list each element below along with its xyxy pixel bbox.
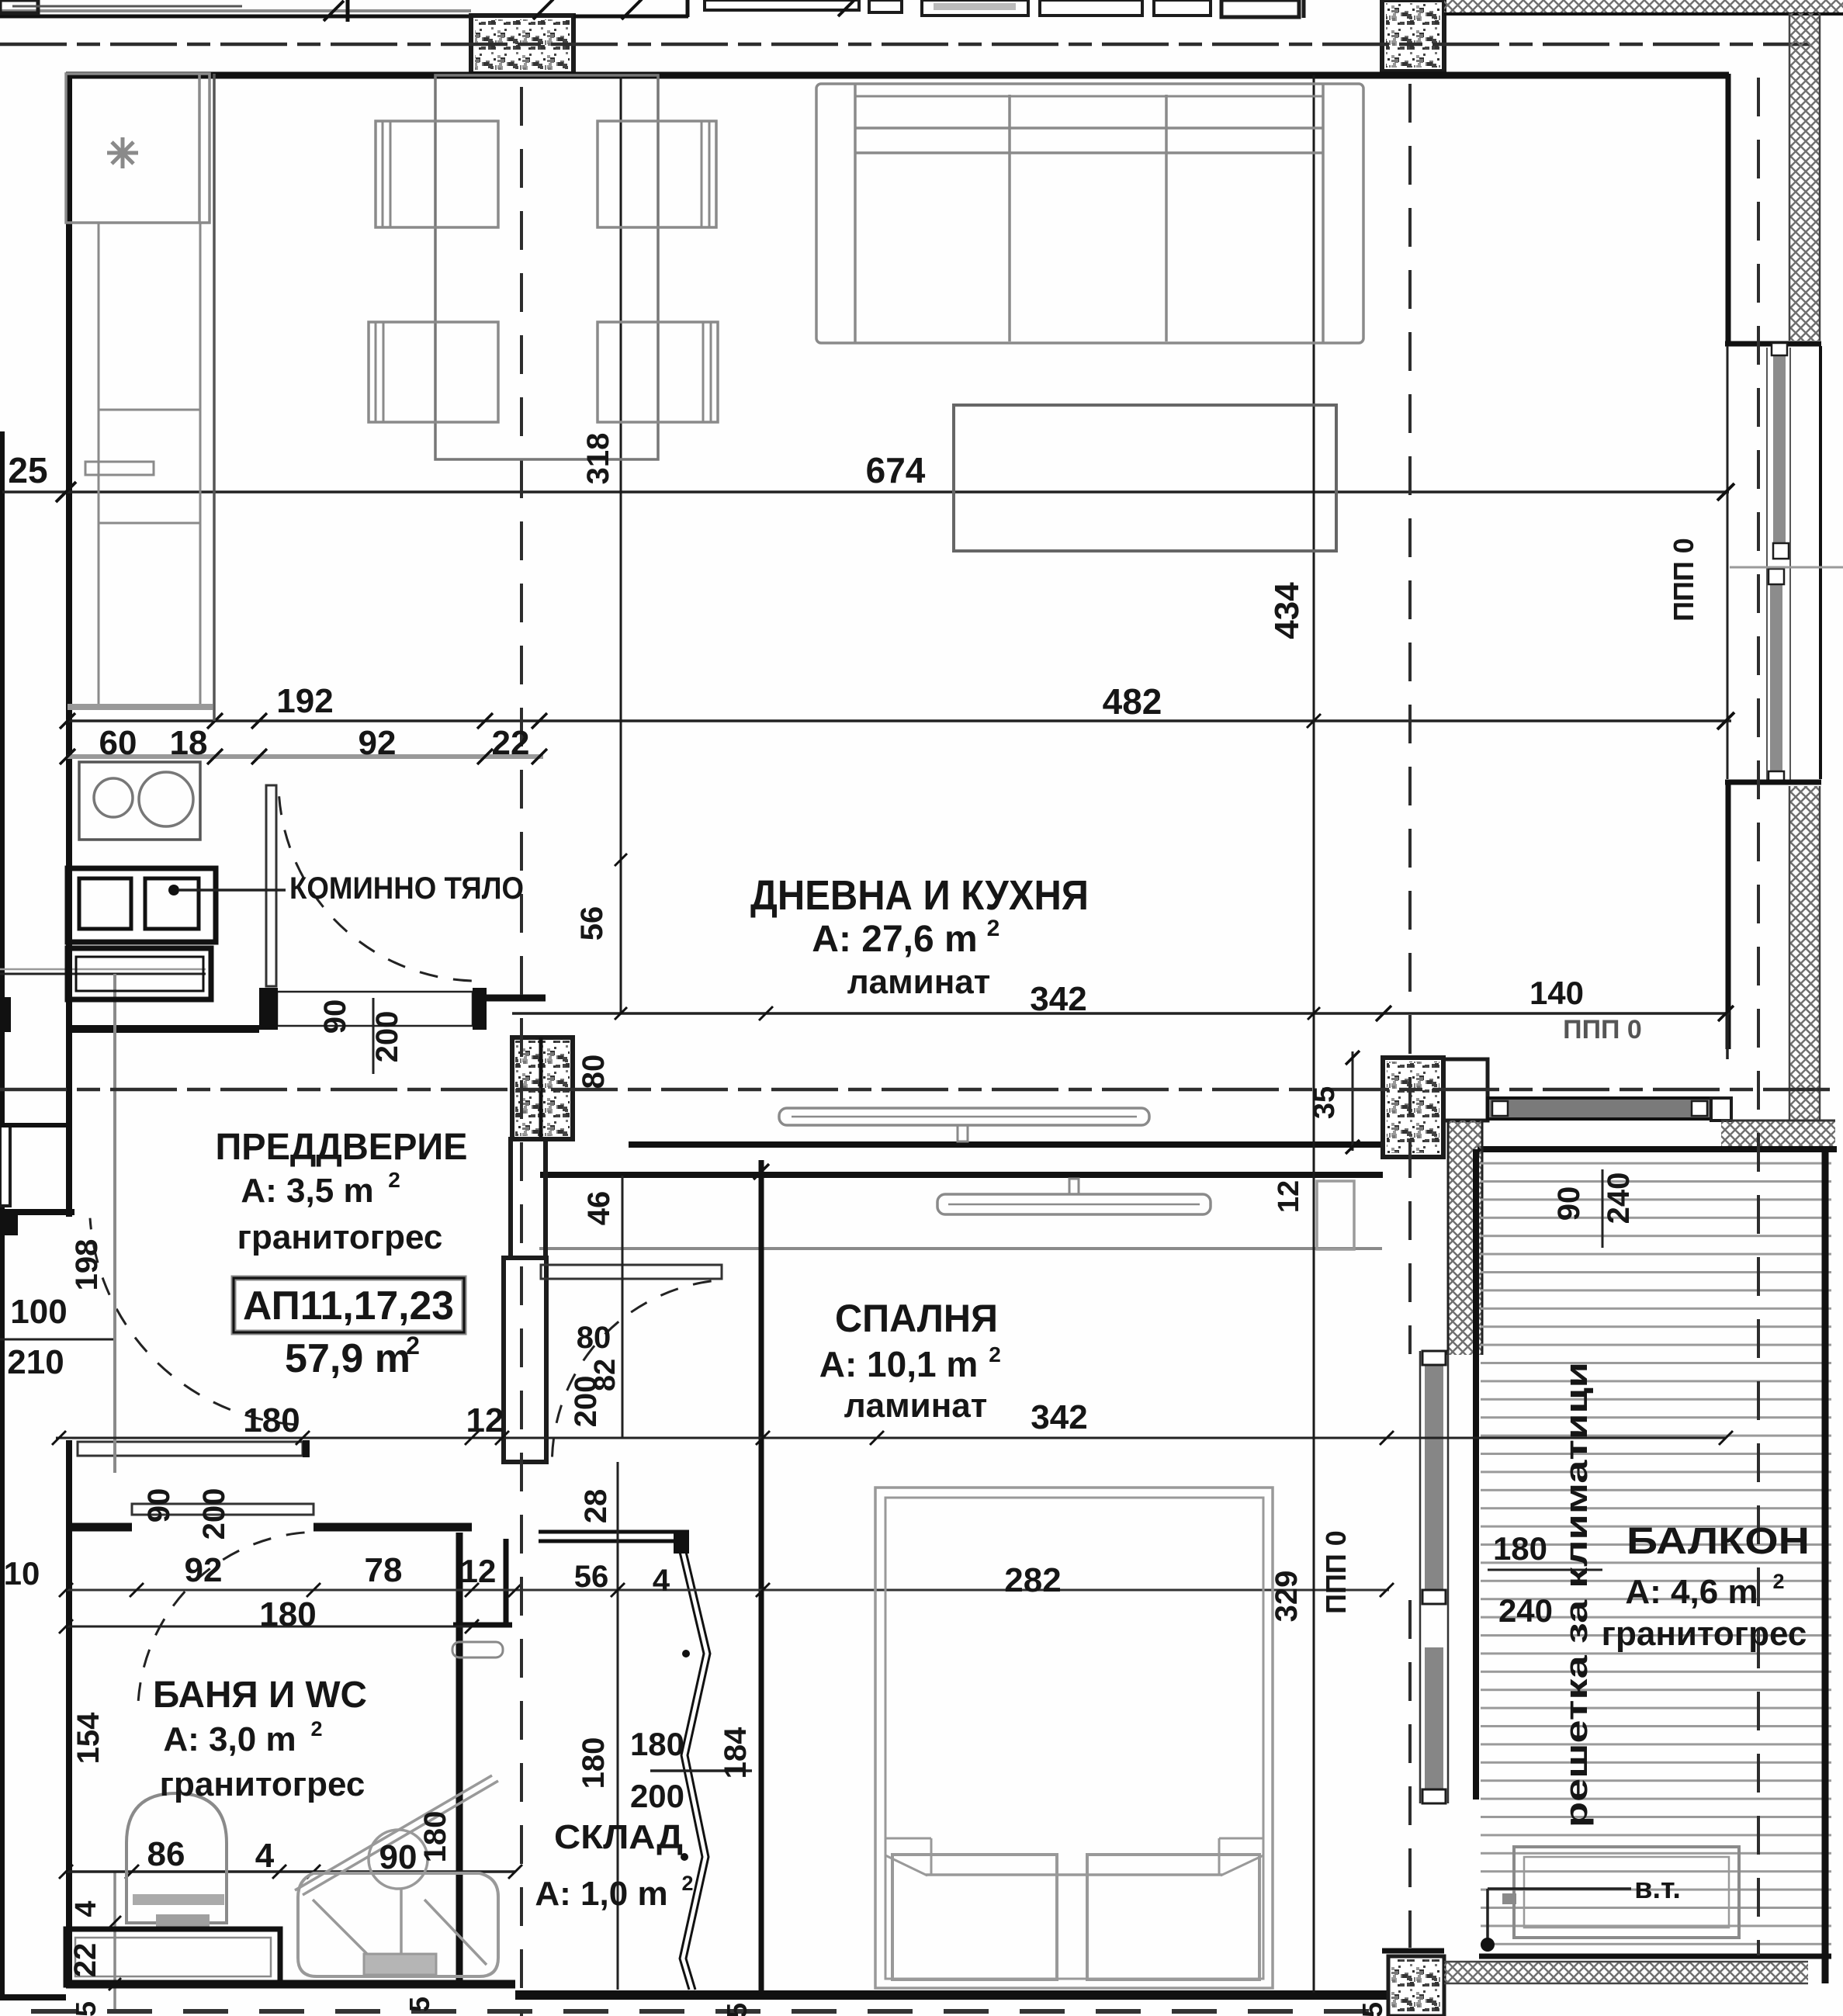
svg-text:80: 80 [577,1055,611,1089]
svg-text:140: 140 [1529,975,1584,1011]
svg-text:25: 25 [8,450,47,490]
svg-text:5: 5 [70,2001,102,2016]
svg-text:184: 184 [719,1727,753,1779]
svg-text:5: 5 [1356,2002,1388,2016]
svg-text:22: 22 [492,724,530,762]
svg-text:А: 4,6 m: А: 4,6 m [1625,1573,1758,1611]
svg-text:АП11,17,23: АП11,17,23 [243,1283,454,1328]
svg-text:200: 200 [630,1778,684,1814]
svg-text:154: 154 [71,1712,106,1764]
svg-text:90: 90 [142,1488,176,1523]
svg-text:198: 198 [70,1239,104,1291]
svg-text:22: 22 [68,1943,102,1978]
svg-text:180: 180 [630,1726,684,1762]
svg-text:78: 78 [365,1551,403,1589]
svg-text:210: 210 [7,1343,64,1381]
svg-text:56: 56 [575,906,609,941]
svg-text:СПАЛНЯ: СПАЛНЯ [835,1297,998,1340]
svg-text:А: 10,1 m: А: 10,1 m [819,1344,979,1384]
svg-text:ПРЕДДВЕРИЕ: ПРЕДДВЕРИЕ [216,1127,468,1168]
svg-text:2: 2 [989,1342,1001,1367]
svg-text:БАНЯ И WC: БАНЯ И WC [153,1675,367,1716]
svg-text:200: 200 [197,1488,231,1540]
svg-text:2: 2 [388,1168,400,1192]
svg-text:28: 28 [579,1489,613,1524]
svg-text:674: 674 [866,450,926,490]
svg-text:2: 2 [987,916,1000,941]
svg-text:4: 4 [255,1837,275,1875]
svg-text:82: 82 [589,1359,622,1391]
svg-text:180: 180 [1493,1530,1547,1567]
svg-text:5: 5 [404,1997,435,2012]
svg-text:200: 200 [370,1011,404,1063]
svg-text:180: 180 [577,1737,611,1789]
svg-text:2: 2 [310,1717,322,1741]
svg-text:60: 60 [99,724,137,762]
svg-text:БАЛКОН: БАЛКОН [1626,1521,1810,1562]
svg-text:А: 3,0 m: А: 3,0 m [163,1720,296,1758]
svg-text:гранитогрес: гранитогрес [237,1218,443,1256]
svg-text:434: 434 [1268,582,1306,639]
svg-text:180: 180 [418,1811,452,1863]
svg-text:56: 56 [574,1560,609,1594]
svg-text:342: 342 [1031,1398,1087,1436]
svg-text:18: 18 [170,724,208,762]
svg-text:57,9 m: 57,9 m [285,1336,411,1381]
svg-text:12: 12 [460,1553,497,1589]
svg-text:А: 27,6 m: А: 27,6 m [812,919,977,960]
svg-text:ламинат: ламинат [847,963,991,1001]
svg-text:80: 80 [577,1321,611,1355]
svg-text:4: 4 [653,1564,670,1598]
svg-text:гранитогрес: гранитогрес [160,1765,365,1803]
svg-text:192: 192 [276,682,333,720]
svg-text:90: 90 [1552,1186,1586,1221]
svg-text:ламинат: ламинат [844,1387,988,1425]
svg-text:12: 12 [466,1401,504,1439]
svg-text:92: 92 [359,724,397,762]
svg-text:46: 46 [582,1191,616,1226]
svg-text:ППП 0: ППП 0 [1320,1530,1352,1614]
svg-text:318: 318 [581,433,615,485]
svg-text:в.т.: в.т. [1634,1872,1681,1905]
svg-text:2: 2 [406,1332,420,1360]
svg-text:10: 10 [4,1555,40,1592]
svg-text:12: 12 [1273,1180,1305,1213]
svg-text:180: 180 [259,1595,316,1633]
svg-text:ДНЕВНА И КУХНЯ: ДНЕВНА И КУХНЯ [750,872,1089,919]
svg-text:90: 90 [318,999,352,1034]
svg-text:180: 180 [243,1401,300,1439]
svg-text:4: 4 [70,1900,102,1917]
svg-text:240: 240 [1602,1173,1636,1224]
svg-text:329: 329 [1270,1571,1304,1623]
svg-text:90: 90 [379,1838,417,1876]
svg-text:СКЛАД: СКЛАД [554,1818,683,1856]
svg-text:282: 282 [1004,1561,1061,1599]
svg-text:ППП 0: ППП 0 [1563,1015,1642,1044]
svg-text:240: 240 [1498,1592,1553,1629]
svg-text:86: 86 [147,1835,185,1873]
svg-text:5: 5 [721,2003,753,2016]
svg-text:2: 2 [1772,1570,1784,1593]
svg-text:342: 342 [1030,980,1086,1018]
svg-text:482: 482 [1103,681,1162,722]
svg-text:92: 92 [185,1551,223,1589]
svg-text:ППП 0: ППП 0 [1668,538,1699,622]
svg-text:решетка за климатици: решетка за климатици [1560,1362,1594,1827]
svg-text:100: 100 [10,1293,67,1331]
svg-text:КОМИННО ТЯЛО: КОМИННО ТЯЛО [289,871,524,906]
svg-text:гранитогрес: гранитогрес [1602,1615,1807,1653]
svg-text:2: 2 [681,1872,693,1895]
svg-text:35: 35 [1308,1086,1341,1119]
svg-text:А: 1,0 m: А: 1,0 m [535,1875,667,1913]
svg-text:А: 3,5 m: А: 3,5 m [241,1172,373,1210]
